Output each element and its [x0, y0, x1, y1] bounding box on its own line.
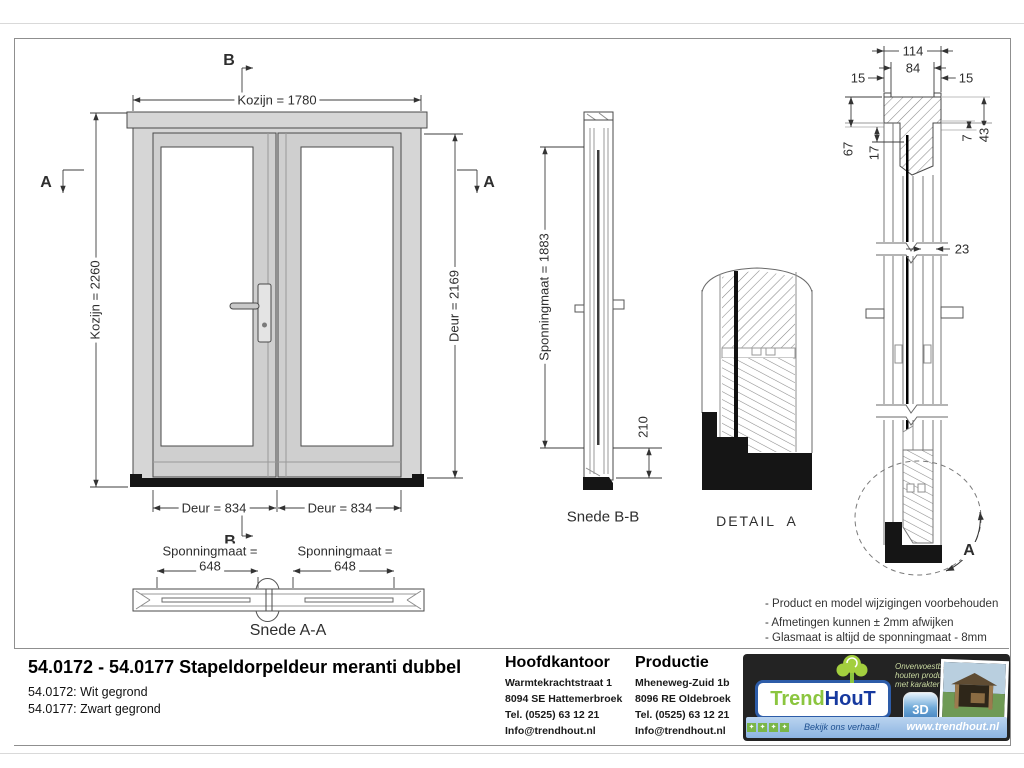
production-email: Info@trendhout.nl	[635, 725, 726, 737]
office-address-line: Warmtekrachtstraat 1	[505, 677, 612, 689]
dim-114: 114	[900, 44, 927, 59]
rating-square-icon: ✦	[769, 723, 778, 732]
brand-text-trend: Trend	[770, 688, 824, 711]
view-label-detail-a: DETAIL A	[716, 513, 798, 529]
dim-67: 67	[841, 139, 856, 159]
rating-square-icon: ✦	[780, 723, 789, 732]
variant-zwart-gegrond: 54.0177: Zwart gegrond	[28, 702, 161, 716]
office-email: Info@trendhout.nl	[505, 725, 596, 737]
tree-icon	[831, 654, 873, 684]
production-address-line: Mheneweg-Zuid 1b	[635, 677, 730, 689]
view-label-snede-aa: Snede A-A	[250, 622, 327, 640]
dim-sponningmaat-left-label: Sponningmaat =	[159, 544, 260, 559]
dim-deur-height: Deur = 2169	[447, 267, 462, 345]
dim-23: 23	[952, 242, 972, 257]
dim-17: 17	[867, 143, 882, 163]
office-heading: Hoofdkantoor	[505, 654, 610, 672]
detail-a-drawing	[702, 268, 812, 490]
dim-sponningmaat-right-label: Sponningmaat =	[294, 544, 395, 559]
dim-sponningmaat-right-value: 648	[331, 559, 359, 574]
brand-text-hout: HouT	[825, 688, 876, 711]
snede-aa-drawing	[133, 579, 424, 622]
logo-tagline-line3: met karakter	[895, 680, 939, 689]
website-url: www.trendhout.nl	[907, 721, 999, 733]
trendhout-wordmark: TrendHouT	[755, 680, 891, 719]
rating-square-icon: ✦	[758, 723, 767, 732]
trendhout-logo-banner: TrendHouT Onverwoestbare houten producte…	[743, 654, 1010, 741]
section-marker-a-right: A	[481, 174, 497, 192]
section-marker-a-left: A	[38, 174, 54, 192]
production-address-line: 8096 RE Oldebroek	[635, 693, 731, 705]
drawing-title: 54.0172 - 54.0177 Stapeldorpeldeur meran…	[28, 657, 461, 678]
dim-kozijn-width: Kozijn = 1780	[234, 93, 319, 108]
dim-15-left: 15	[848, 71, 868, 86]
dim-kozijn-height: Kozijn = 2260	[88, 257, 103, 342]
note-glass-size: - Glasmaat is altijd de sponningmaat - 8…	[765, 632, 987, 644]
dim-210: 210	[636, 413, 651, 441]
dim-deur-right-width: Deur = 834	[305, 501, 376, 516]
dim-84: 84	[903, 61, 923, 76]
production-phone: Tel. (0525) 63 12 21	[635, 709, 729, 721]
snede-bb-drawing	[575, 112, 624, 490]
front-elevation-drawing	[127, 112, 427, 487]
note-dimension-tolerance: - Afmetingen kunnen ± 2mm afwijken	[765, 617, 954, 629]
logo-slogan: Bekijk ons verhaal!	[804, 722, 880, 732]
dim-sponningmaat-height: Sponningmaat = 1883	[537, 230, 552, 364]
logo-bottom-bar: ✦✦✦✦ Bekijk ons verhaal! www.trendhout.n…	[746, 717, 1007, 738]
snede-aa-dimensions	[157, 571, 394, 588]
drawing-page: Kozijn = 1780 Kozijn = 2260 Deur = 2169 …	[0, 0, 1024, 768]
rating-square-icon: ✦	[747, 723, 756, 732]
dim-15-right: 15	[956, 71, 976, 86]
gazebo-photo	[939, 659, 1009, 723]
dim-deur-left-width: Deur = 834	[179, 501, 250, 516]
dim-43: 43	[977, 125, 992, 145]
section-marker-b-top: B	[221, 52, 237, 70]
detail-marker-a: A	[961, 542, 977, 560]
view-label-snede-bb: Snede B-B	[567, 509, 640, 526]
office-phone: Tel. (0525) 63 12 21	[505, 709, 599, 721]
dim-sponningmaat-left-value: 648	[196, 559, 224, 574]
production-heading: Productie	[635, 654, 709, 672]
right-section-drawing	[845, 93, 992, 575]
title-block: 54.0172 - 54.0177 Stapeldorpeldeur meran…	[14, 648, 1009, 745]
variant-wit-gegrond: 54.0172: Wit gegrond	[28, 685, 148, 699]
office-address-line: 8094 SE Hattemerbroek	[505, 693, 622, 705]
dim-7: 7	[960, 131, 975, 144]
note-product-changes: - Product en model wijzigingen voorbehou…	[765, 598, 998, 610]
